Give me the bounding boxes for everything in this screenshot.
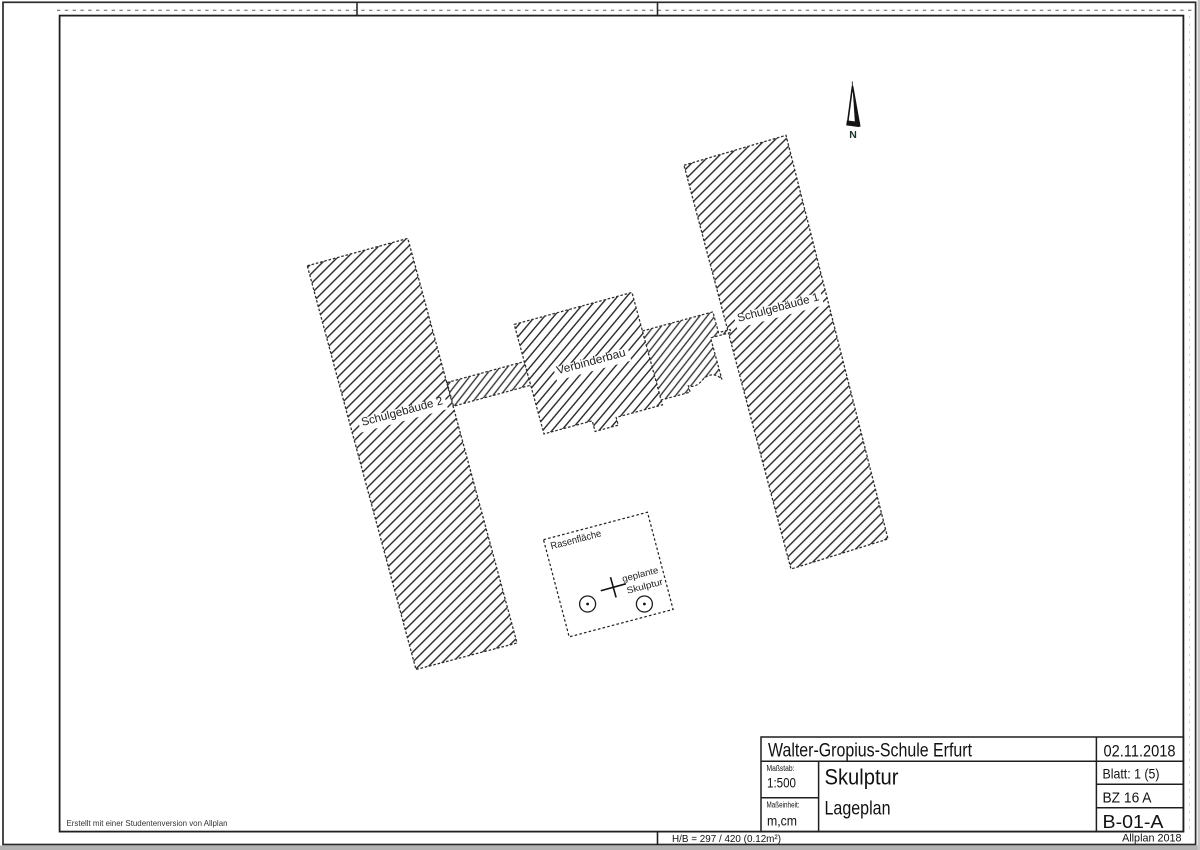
svg-text:Erstellt mit einer Studentenve: Erstellt mit einer Studentenversion von …: [67, 819, 228, 828]
svg-text:Blatt: 1 (5): Blatt: 1 (5): [1103, 766, 1160, 782]
svg-text:Lageplan: Lageplan: [825, 798, 891, 820]
svg-text:02.11.2018: 02.11.2018: [1104, 743, 1176, 761]
svg-text:Maßstab:: Maßstab:: [767, 764, 795, 773]
svg-text:N: N: [849, 129, 857, 141]
svg-text:Maßeinheit:: Maßeinheit:: [767, 801, 800, 810]
svg-text:Skulptur: Skulptur: [825, 765, 899, 790]
svg-text:Allplan 2018: Allplan 2018: [1122, 833, 1181, 845]
svg-text:Walter-Gropius-Schule Erfurt: Walter-Gropius-Schule Erfurt: [768, 741, 973, 762]
svg-text:m,cm: m,cm: [767, 813, 797, 829]
svg-text:BZ 16 A: BZ 16 A: [1103, 791, 1152, 807]
svg-text:1:500: 1:500: [767, 775, 796, 791]
svg-text:H/B = 297 / 420 (0.12m²): H/B = 297 / 420 (0.12m²): [672, 833, 781, 845]
svg-text:B-01-A: B-01-A: [1103, 811, 1165, 832]
